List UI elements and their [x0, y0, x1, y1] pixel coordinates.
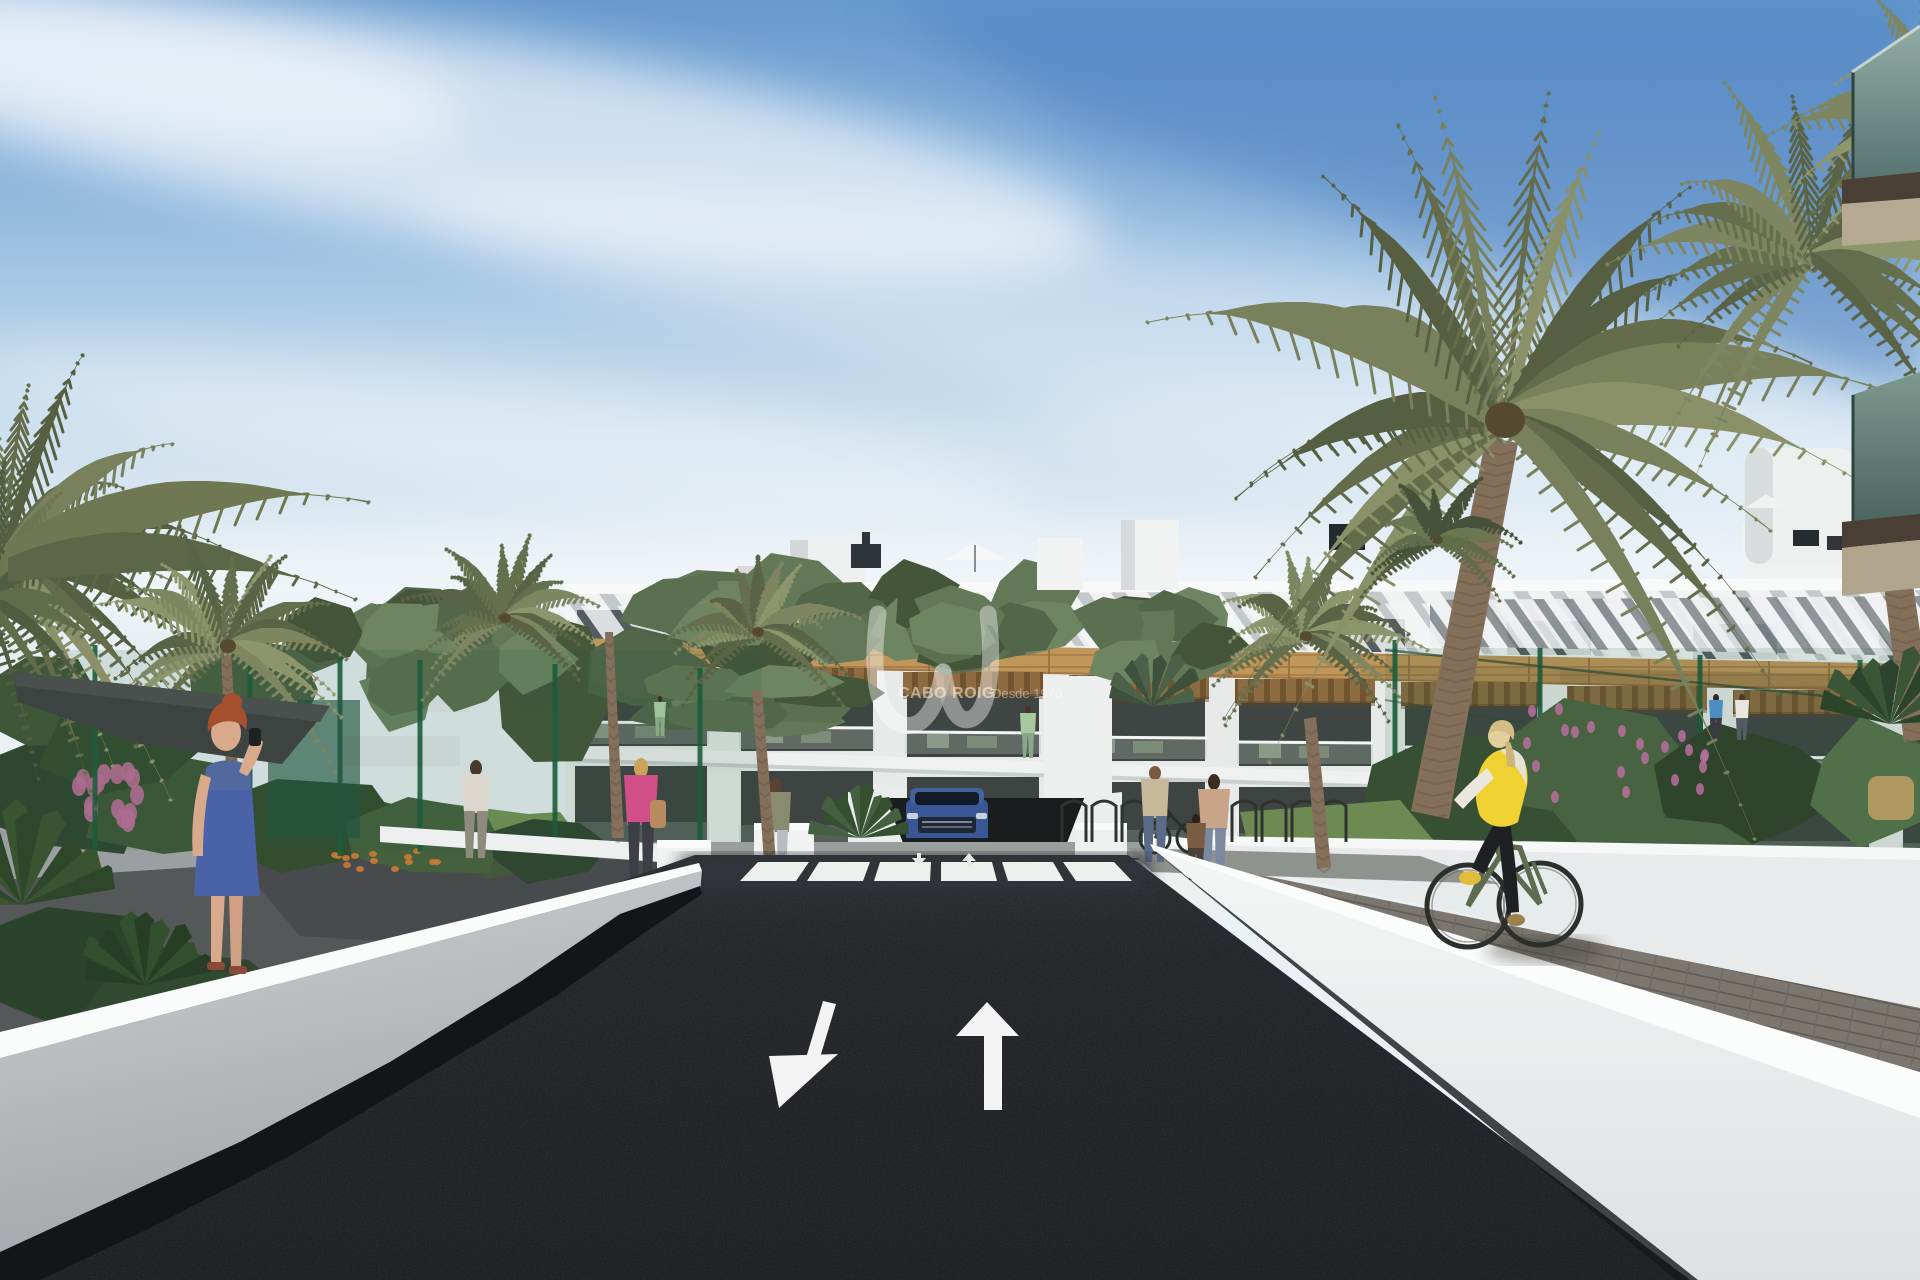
svg-text:Desde 1970: Desde 1970	[992, 686, 1062, 701]
svg-text:CABO ROIG: CABO ROIG	[898, 685, 995, 702]
